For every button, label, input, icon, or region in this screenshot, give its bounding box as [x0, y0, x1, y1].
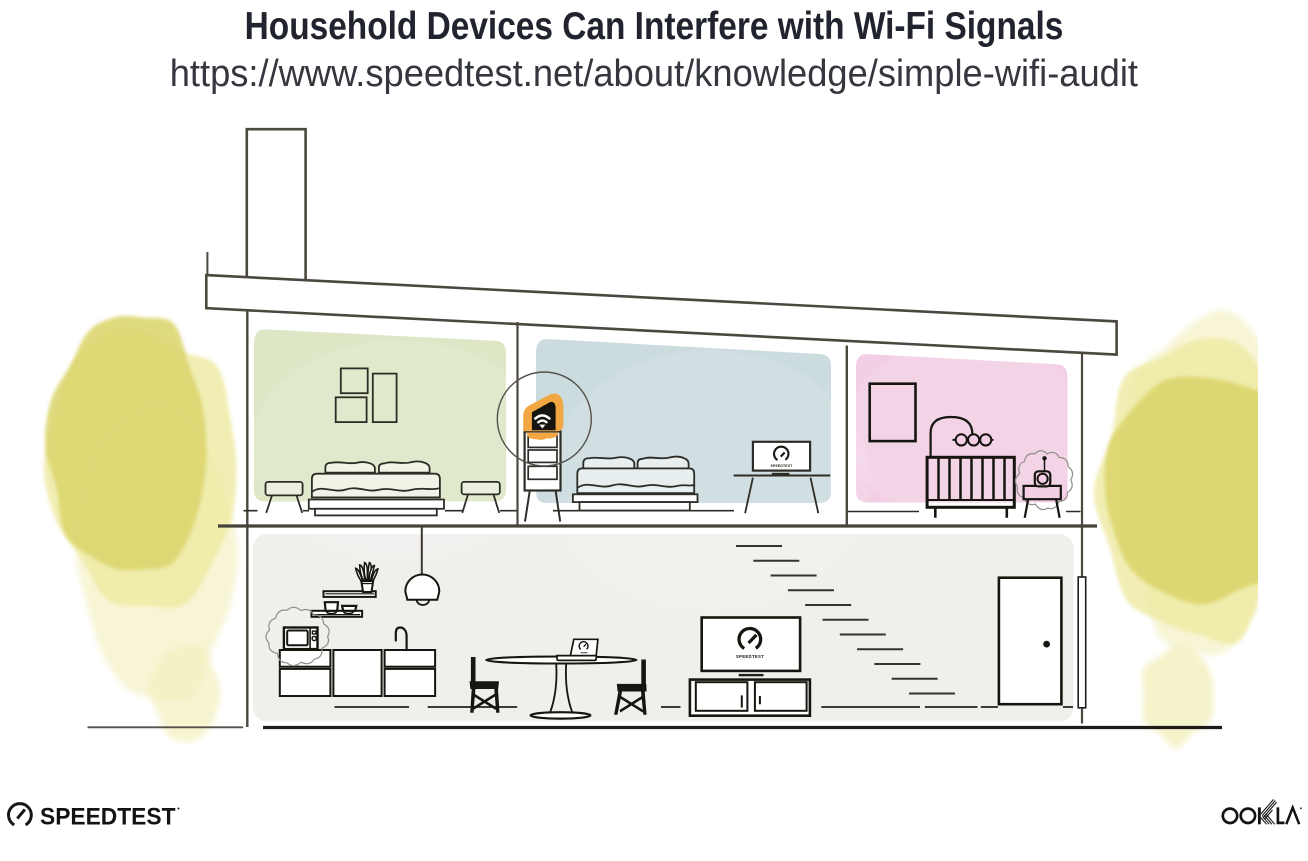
- svg-text:SPEEDTEST: SPEEDTEST: [40, 803, 176, 830]
- svg-text:SPEEDTEST: SPEEDTEST: [736, 654, 764, 659]
- svg-text:SPEEDTEST: SPEEDTEST: [771, 464, 794, 468]
